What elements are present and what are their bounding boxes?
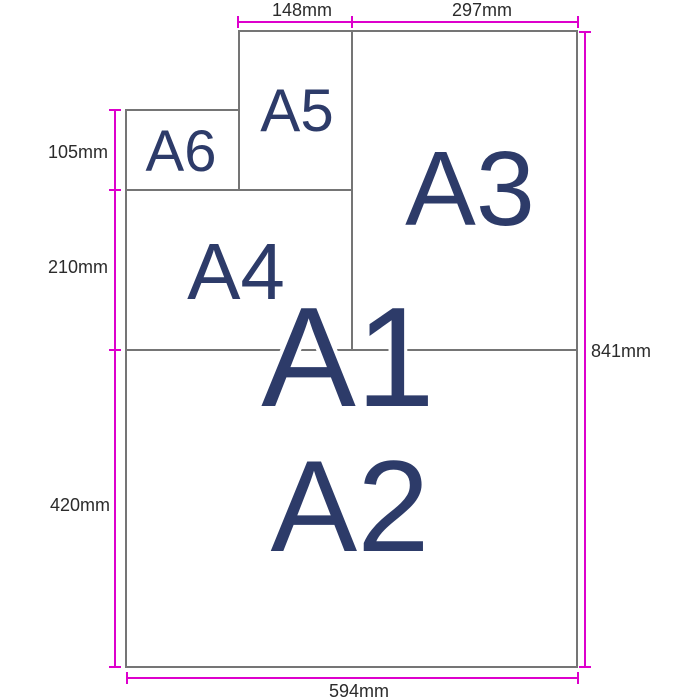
left-dim-tick-1 — [109, 109, 121, 111]
dim-label-a2-height: 420mm — [38, 496, 110, 514]
dim-label-a3-width: 297mm — [452, 1, 512, 19]
dim-label-a5-width: 148mm — [272, 1, 332, 19]
paper-label-a1: A1 — [261, 287, 435, 429]
right-dimension-line — [584, 31, 586, 668]
dim-label-sheet-height: 841mm — [591, 342, 651, 360]
paper-label-a5: A5 — [260, 81, 333, 141]
bottom-dim-tick-right — [577, 672, 579, 684]
paper-sizes-diagram: 148mm 297mm 841mm 105mm 210mm 420mm 594m… — [0, 0, 700, 700]
top-dimension-line — [237, 21, 579, 23]
sheet-bottom-border — [125, 666, 578, 668]
dim-label-sheet-width: 594mm — [329, 682, 389, 700]
sheet-top-border — [239, 30, 578, 32]
dim-label-a6-height: 105mm — [36, 143, 108, 161]
left-dimension-line — [114, 109, 116, 668]
paper-label-a6: A6 — [146, 123, 217, 181]
top-dim-tick-left — [237, 16, 239, 28]
dim-label-a4-height: 210mm — [36, 258, 108, 276]
top-dim-tick-middle — [351, 16, 353, 28]
bottom-dimension-line — [126, 677, 579, 679]
bottom-dim-tick-left — [126, 672, 128, 684]
top-dim-tick-right — [577, 16, 579, 28]
paper-label-a3: A3 — [405, 136, 535, 242]
right-dim-tick-top — [579, 31, 591, 33]
left-dim-tick-2 — [109, 189, 121, 191]
a6-top-border — [125, 109, 240, 111]
right-dim-tick-bottom — [579, 666, 591, 668]
sheet-left-border — [125, 109, 127, 668]
a6-a5-divider-line — [238, 30, 240, 191]
a6a5-a4-divider-line — [125, 189, 353, 191]
paper-label-a2: A2 — [270, 441, 429, 571]
left-dim-tick-4 — [109, 666, 121, 668]
left-dim-tick-3 — [109, 349, 121, 351]
